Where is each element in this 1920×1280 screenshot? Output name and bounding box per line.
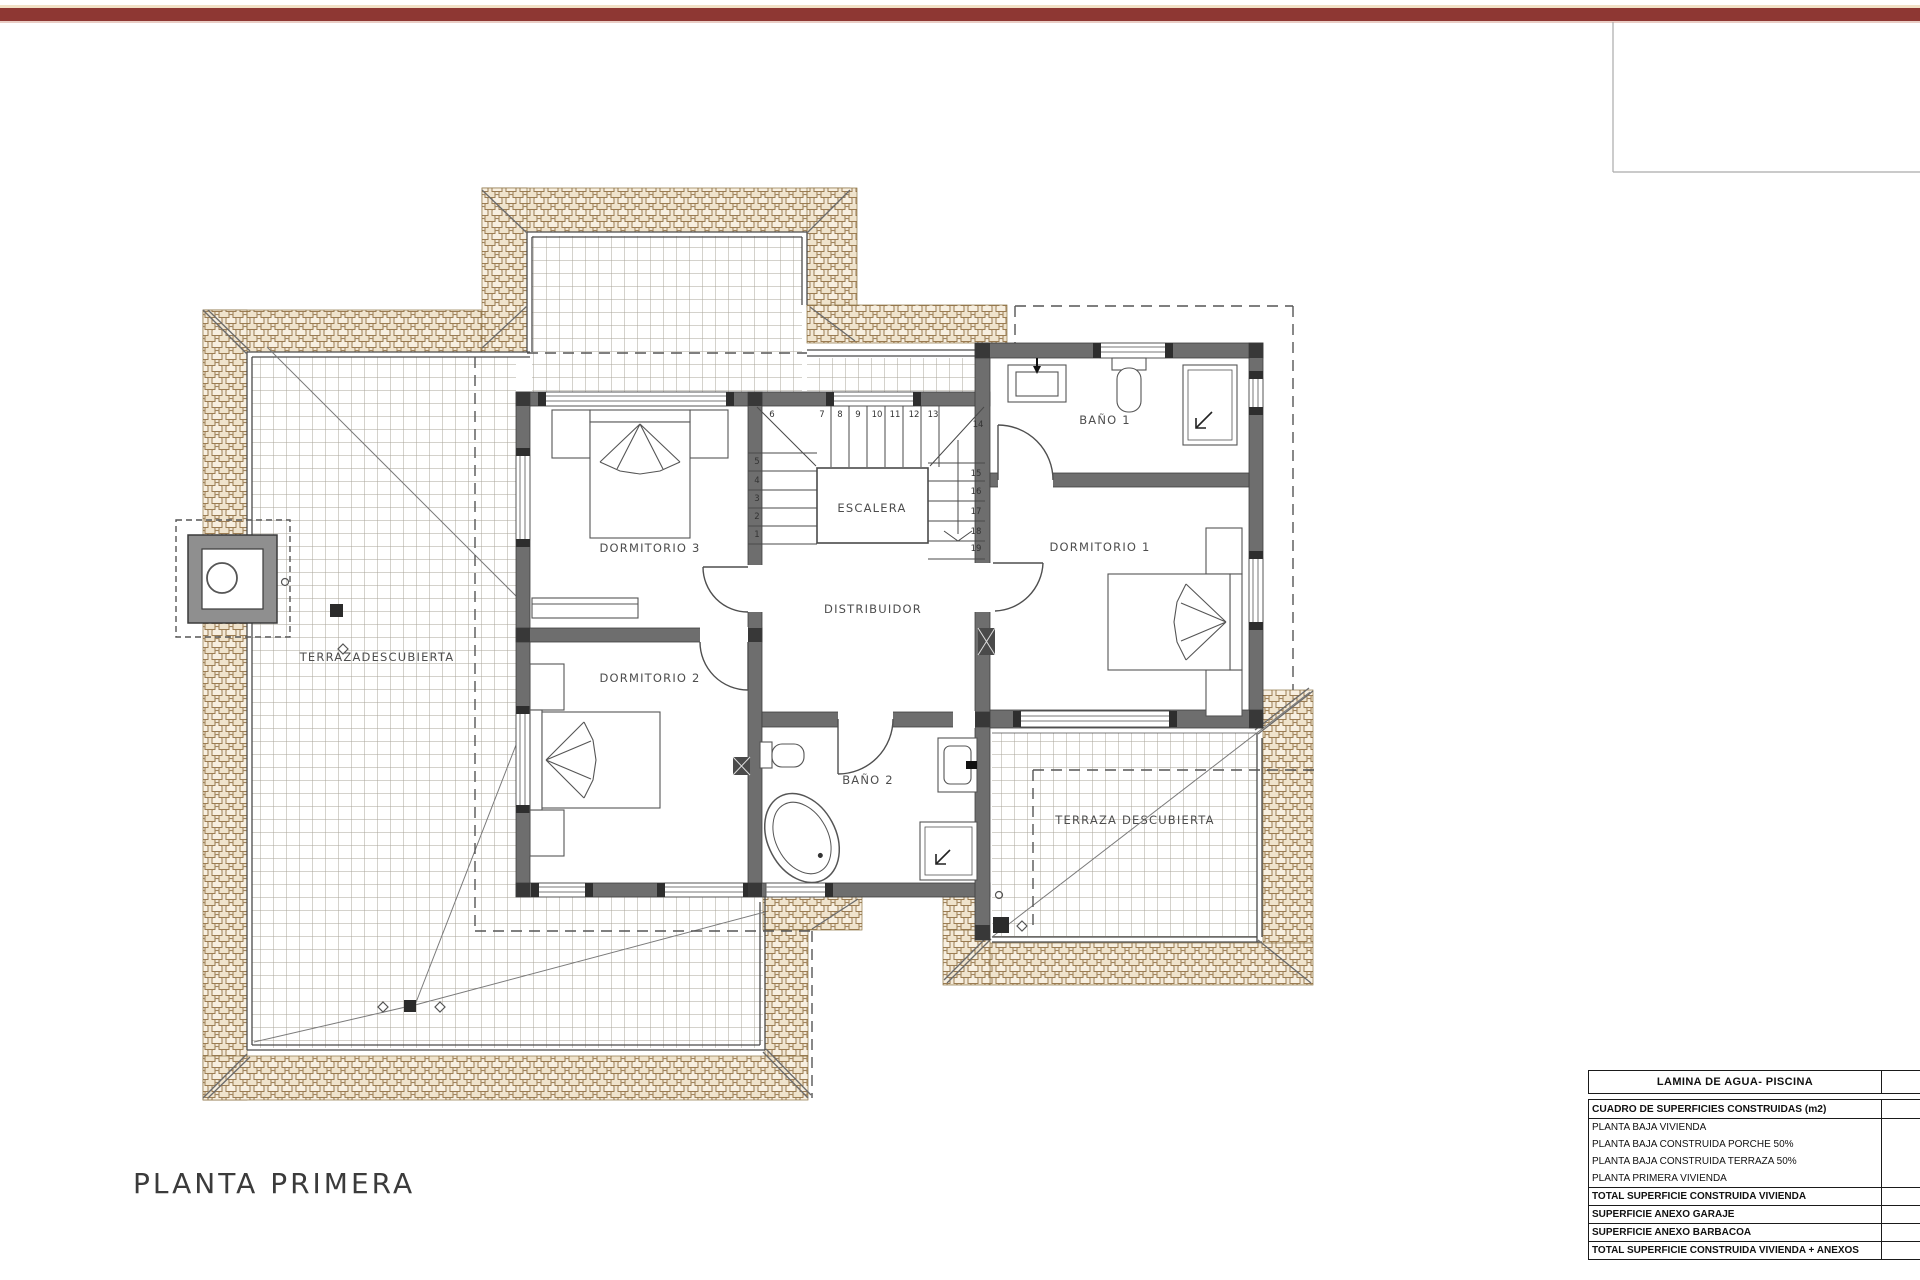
accent-bar [0, 8, 1920, 21]
room-label-terraza-izquierda: TERRAZADESCUBIERTA [299, 650, 455, 664]
row-label: PLANTA BAJA CONSTRUIDA PORCHE 50% [1589, 1139, 1881, 1150]
lamina-value-cell [1881, 1071, 1920, 1093]
stair-number: 15 [971, 469, 982, 479]
value-cell [1881, 1206, 1920, 1223]
table-header-row: CUADRO DE SUPERFICIES CONSTRUIDAS (m2) [1589, 1100, 1920, 1119]
table-row-total-vivienda: TOTAL SUPERFICIE CONSTRUIDA VIVIENDA [1589, 1187, 1920, 1205]
stair-number: 16 [971, 487, 982, 497]
table-row: PLANTA BAJA CONSTRUIDA PORCHE 50% [1589, 1136, 1920, 1153]
table-row: PLANTA PRIMERA VIVIENDA [1589, 1170, 1920, 1187]
wardrobe-dormitorio3 [532, 598, 638, 618]
lamina-table: LAMINA DE AGUA- PISCINA [1588, 1070, 1920, 1094]
accent-bar-highlight [0, 5, 1920, 8]
table-row-barbacoa: SUPERFICIE ANEXO BARBACOA [1589, 1223, 1920, 1241]
table-row-total-anexos: TOTAL SUPERFICIE CONSTRUIDA VIVIENDA + A… [1589, 1241, 1920, 1259]
stair-number: 14 [973, 420, 984, 430]
value-cell [1881, 1153, 1920, 1170]
bano1-toilet [1112, 358, 1146, 412]
room-label-distribuidor: DISTRIBUIDOR [824, 602, 922, 616]
row-label: TOTAL SUPERFICIE CONSTRUIDA VIVIENDA [1589, 1191, 1881, 1202]
value-cell [1881, 1224, 1920, 1241]
table-row: PLANTA BAJA VIVIENDA [1589, 1119, 1920, 1136]
bano2-shower [920, 822, 977, 880]
bano2-sink [938, 738, 977, 792]
stair-number: 1 [754, 530, 759, 540]
stair-number: 7 [819, 410, 824, 420]
door-dormitorio3 [703, 567, 748, 612]
lamina-title: LAMINA DE AGUA- PISCINA [1589, 1071, 1881, 1093]
stair-number: 3 [754, 494, 759, 504]
value-cell [1881, 1100, 1920, 1118]
row-label: PLANTA BAJA CONSTRUIDA TERRAZA 50% [1589, 1156, 1881, 1167]
staircase [748, 406, 985, 559]
value-cell [1881, 1242, 1920, 1259]
stair-number: 18 [971, 527, 982, 537]
room-label-bano-2: BAÑO 2 [842, 772, 894, 787]
stair-number: 13 [928, 410, 939, 420]
chimney-flue-circle [207, 563, 237, 593]
room-label-bano-1: BAÑO 1 [1079, 412, 1131, 427]
room-label-dormitorio-3: DORMITORIO 3 [599, 541, 700, 555]
room-label-dormitorio-1: DORMITORIO 1 [1049, 540, 1150, 554]
chimney [188, 535, 277, 623]
table-header-label: CUADRO DE SUPERFICIES CONSTRUIDAS (m2) [1589, 1104, 1881, 1115]
room-label-dormitorio-2: DORMITORIO 2 [599, 671, 700, 685]
row-label: TOTAL SUPERFICIE CONSTRUIDA VIVIENDA + A… [1589, 1245, 1881, 1256]
bano2-bathtub [750, 781, 854, 896]
stair-number: 8 [837, 410, 842, 420]
stair-number: 19 [971, 544, 982, 554]
bed-dormitorio3 [552, 410, 728, 538]
row-label: PLANTA BAJA VIVIENDA [1589, 1122, 1881, 1133]
row-label: SUPERFICIE ANEXO GARAJE [1589, 1209, 1881, 1220]
door-dormitorio2 [700, 642, 748, 690]
room-label-escalera: ESCALERA [837, 501, 906, 515]
page-title: PLANTA PRIMERA [133, 1167, 415, 1200]
surfaces-table-block: LAMINA DE AGUA- PISCINA CUADRO DE SUPERF… [1588, 1070, 1920, 1260]
door-bano1 [998, 425, 1053, 480]
stair-number: 11 [890, 410, 901, 420]
row-label: PLANTA PRIMERA VIVIENDA [1589, 1173, 1881, 1184]
sheet-frame [0, 5, 1920, 172]
bano1-sink [1008, 358, 1066, 402]
stair-number: 2 [754, 512, 759, 522]
value-cell [1881, 1188, 1920, 1205]
stair-number: 9 [855, 410, 860, 420]
superficies-table: CUADRO DE SUPERFICIES CONSTRUIDAS (m2) P… [1588, 1099, 1920, 1260]
bano1-shower [1183, 365, 1237, 445]
value-cell [1881, 1170, 1920, 1187]
bed-dormitorio1 [1108, 528, 1242, 716]
room-label-terraza-derecha: TERRAZA DESCUBIERTA [1054, 813, 1214, 827]
row-label: SUPERFICIE ANEXO BARBACOA [1589, 1227, 1881, 1238]
stair-number: 5 [754, 457, 759, 467]
stair-number: 6 [769, 410, 774, 420]
bano2-toilet [760, 742, 804, 768]
stair-number: 4 [754, 476, 759, 486]
table-row-garaje: SUPERFICIE ANEXO GARAJE [1589, 1205, 1920, 1223]
stair-number: 10 [872, 410, 883, 420]
drawing-sheet: 1 2 3 4 5 6 7 8 9 10 11 12 13 14 15 16 1… [0, 0, 1920, 1280]
value-cell [1881, 1136, 1920, 1153]
bed-dormitorio2 [530, 664, 660, 856]
value-cell [1881, 1119, 1920, 1136]
stair-number: 17 [971, 507, 982, 517]
accent-bar-shadow [0, 21, 1920, 23]
stair-number: 12 [909, 410, 920, 420]
door-dormitorio1 [993, 563, 1043, 611]
table-row: PLANTA BAJA CONSTRUIDA TERRAZA 50% [1589, 1153, 1920, 1170]
